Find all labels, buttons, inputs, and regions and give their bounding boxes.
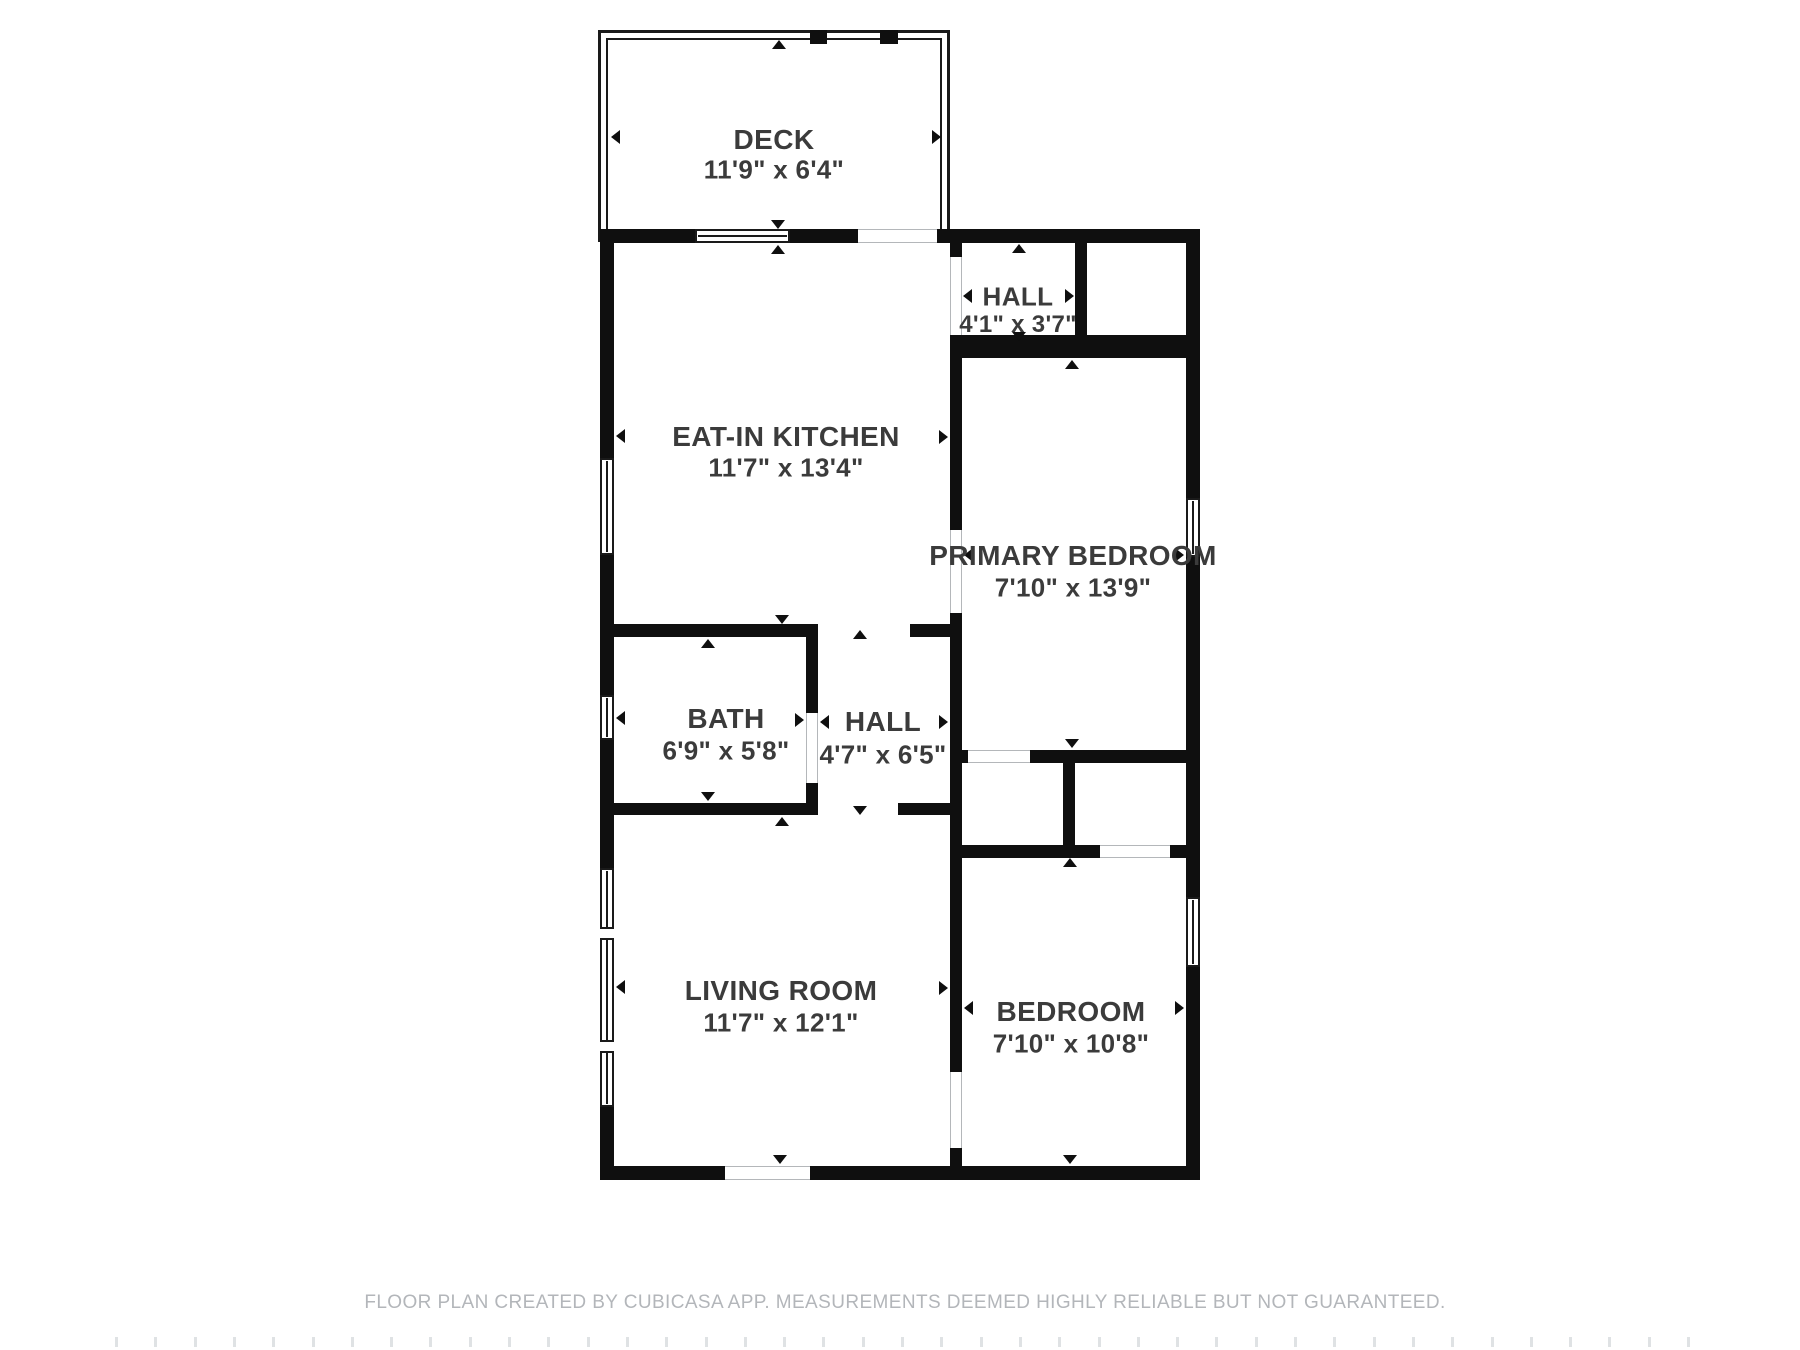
room-dims-bath: 6'9" x 5'8" [662, 736, 789, 767]
measure-arrow-hall-upper-left [963, 289, 972, 303]
room-label-deck: DECK [734, 124, 815, 156]
ruler-tick [351, 1337, 354, 1347]
room-dims-eat-in-kitchen: 11'7" x 13'4" [708, 453, 863, 484]
ruler-tick [1137, 1337, 1140, 1347]
measure-arrow-living-left [616, 980, 625, 994]
window-divider [600, 927, 614, 940]
deck-post [810, 30, 827, 44]
ruler-tick [1569, 1337, 1572, 1347]
ruler-tick [665, 1337, 668, 1347]
measure-arrow-deck-left [611, 130, 620, 144]
measure-arrow-hall-center-up [853, 630, 867, 639]
room-dims-hall-upper: 4'1" x 3'7" [959, 311, 1077, 339]
ruler-tick [1608, 1337, 1611, 1347]
wall-primary-bottom-stub [950, 750, 968, 763]
measure-arrow-primary-up [1065, 360, 1079, 369]
measure-arrow-bedroom-right [1175, 1001, 1184, 1015]
ruler-tick [901, 1337, 904, 1347]
measure-arrow-kitchen-up [771, 245, 785, 254]
ruler-tick [1451, 1337, 1454, 1347]
ruler-tick [1294, 1337, 1297, 1347]
ruler-tick [390, 1337, 393, 1347]
window-pane-line [1192, 900, 1194, 964]
measure-arrow-deck-right [932, 130, 941, 144]
wall-primary-bottom-wall [1030, 750, 1186, 763]
wall-closet-divider-wall [1063, 750, 1075, 858]
room-label-eat-in-kitchen: EAT-IN KITCHEN [672, 421, 900, 453]
measure-arrow-kitchen-right [939, 430, 948, 444]
footer-disclaimer: FLOOR PLAN CREATED BY CUBICASA APP. MEAS… [364, 1292, 1445, 1314]
measure-arrow-kitchen-left [616, 429, 625, 443]
room-label-hall-center: HALL [845, 706, 921, 738]
measure-arrow-hall-center-down [853, 806, 867, 815]
measure-arrow-hall-upper-up [1012, 244, 1026, 253]
window-pane-line [606, 698, 608, 737]
measure-arrow-primary-down [1065, 739, 1079, 748]
ruler-tick [940, 1337, 943, 1347]
window-divider [600, 1040, 614, 1053]
window-living-room-window [600, 868, 614, 1107]
measure-arrow-bath-right [795, 713, 804, 727]
wall-exterior-top-left [600, 229, 695, 243]
floor-plan-canvas: FLOOR PLAN CREATED BY CUBICASA APP. MEAS… [0, 0, 1800, 1350]
ruler-tick [822, 1337, 825, 1347]
wall-bath-bottom-wall [600, 803, 818, 815]
room-label-hall-upper: HALL [983, 282, 1054, 313]
measure-arrow-deck-down [771, 220, 785, 229]
wall-bedroom-top-wall-mid [1075, 845, 1100, 858]
ruler-tick [1019, 1337, 1022, 1347]
window-bedroom-window [1186, 897, 1200, 967]
window-pane-line [698, 235, 787, 237]
room-label-primary-bedroom: PRIMARY BEDROOM [929, 540, 1217, 572]
ruler-tick [1687, 1337, 1690, 1347]
measure-arrow-kitchen-down [775, 615, 789, 624]
opening-closet-opening [968, 750, 1030, 763]
ruler-tick [1058, 1337, 1061, 1347]
ruler-tick [862, 1337, 865, 1347]
wall-bath-top-wall [600, 624, 818, 637]
ruler-tick [272, 1337, 275, 1347]
opening-entry-opening [725, 1166, 810, 1180]
ruler-tick [508, 1337, 511, 1347]
room-label-bath: BATH [687, 703, 764, 735]
measure-arrow-hall-upper-right [1065, 289, 1074, 303]
measure-arrow-living-down [773, 1155, 787, 1164]
wall-bedroom-wall-stub [950, 1148, 962, 1166]
window-kitchen-window [600, 458, 614, 555]
ruler-tick [705, 1337, 708, 1347]
ruler-tick [429, 1337, 432, 1347]
wall-living-top-stub [898, 803, 962, 815]
ruler-tick [233, 1337, 236, 1347]
wall-bath-right-wall-upper [806, 637, 818, 713]
opening-deck-door-opening [858, 229, 937, 243]
window-pane-line [606, 461, 608, 552]
ruler-tick [1255, 1337, 1258, 1347]
room-dims-living-room: 11'7" x 12'1" [703, 1008, 858, 1039]
opening-bath-door-opening [806, 713, 818, 783]
ruler-tick [980, 1337, 983, 1347]
ruler-tick [469, 1337, 472, 1347]
room-dims-deck: 11'9" x 6'4" [704, 155, 844, 186]
ruler-tick [783, 1337, 786, 1347]
measure-arrow-hall-center-right [939, 715, 948, 729]
wall-hall-upper-right-wall [1075, 243, 1087, 347]
ruler-tick [1098, 1337, 1101, 1347]
wall-exterior-right-2 [1186, 557, 1200, 897]
measure-arrow-hall-center-left [820, 715, 829, 729]
wall-bedroom-top-wall-left [950, 845, 1063, 858]
measure-arrow-bedroom-up [1063, 858, 1077, 867]
wall-exterior-right-1 [1186, 243, 1200, 498]
wall-bedroom-top-wall-stub [1170, 845, 1186, 858]
measure-arrow-bedroom-left [964, 1001, 973, 1015]
measure-arrow-bath-up [701, 639, 715, 648]
window-pane-line [606, 871, 608, 1104]
ruler-tick [1491, 1337, 1494, 1347]
wall-exterior-bottom-left [600, 1166, 725, 1180]
ruler-tick [1412, 1337, 1415, 1347]
room-dims-primary-bedroom: 7'10" x 13'9" [995, 573, 1152, 604]
ruler-tick [626, 1337, 629, 1347]
room-dims-hall-center: 4'7" x 6'5" [819, 740, 946, 771]
ruler-tick [1373, 1337, 1376, 1347]
ruler-tick [312, 1337, 315, 1347]
wall-kitchen-bottom-stub [910, 624, 962, 637]
window-deck-wall-window [695, 229, 790, 243]
wall-kitchen-primary-wall-2 [950, 613, 962, 1072]
wall-exterior-top-mid [790, 229, 858, 243]
measure-arrow-bath-left [616, 711, 625, 725]
measure-arrow-bath-down [701, 792, 715, 801]
room-dims-bedroom: 7'10" x 10'8" [993, 1029, 1150, 1060]
ruler-tick [1648, 1337, 1651, 1347]
room-label-living-room: LIVING ROOM [685, 975, 878, 1007]
ruler-tick [115, 1337, 118, 1347]
ruler-tick [1176, 1337, 1179, 1347]
ruler-tick [1333, 1337, 1336, 1347]
ruler-tick [744, 1337, 747, 1347]
measure-arrow-living-up [775, 817, 789, 826]
ruler-tick [587, 1337, 590, 1347]
opening-bedroom-closet-opening [1100, 845, 1170, 858]
wall-exterior-right-3 [1186, 967, 1200, 1180]
ruler-tick [154, 1337, 157, 1347]
ruler-tick [1215, 1337, 1218, 1347]
opening-bedroom-door-opening [950, 1072, 962, 1148]
wall-exterior-top-right [937, 229, 1200, 243]
ruler-tick [194, 1337, 197, 1347]
wall-kitchen-primary-wall-1 [950, 358, 962, 530]
wall-exterior-bottom-right [810, 1166, 1200, 1180]
wall-hall-upper-left-stub [950, 243, 962, 257]
window-bath-window [600, 695, 614, 740]
measure-arrow-living-right [939, 981, 948, 995]
ruler-tick [1530, 1337, 1533, 1347]
room-label-bedroom: BEDROOM [996, 996, 1145, 1028]
measure-arrow-deck-up [772, 40, 786, 49]
ruler-tick [547, 1337, 550, 1347]
deck-post [880, 30, 898, 44]
wall-exterior-left-1 [600, 243, 614, 458]
wall-bath-right-wall-lower [806, 783, 818, 803]
measure-arrow-bedroom-down [1063, 1155, 1077, 1164]
